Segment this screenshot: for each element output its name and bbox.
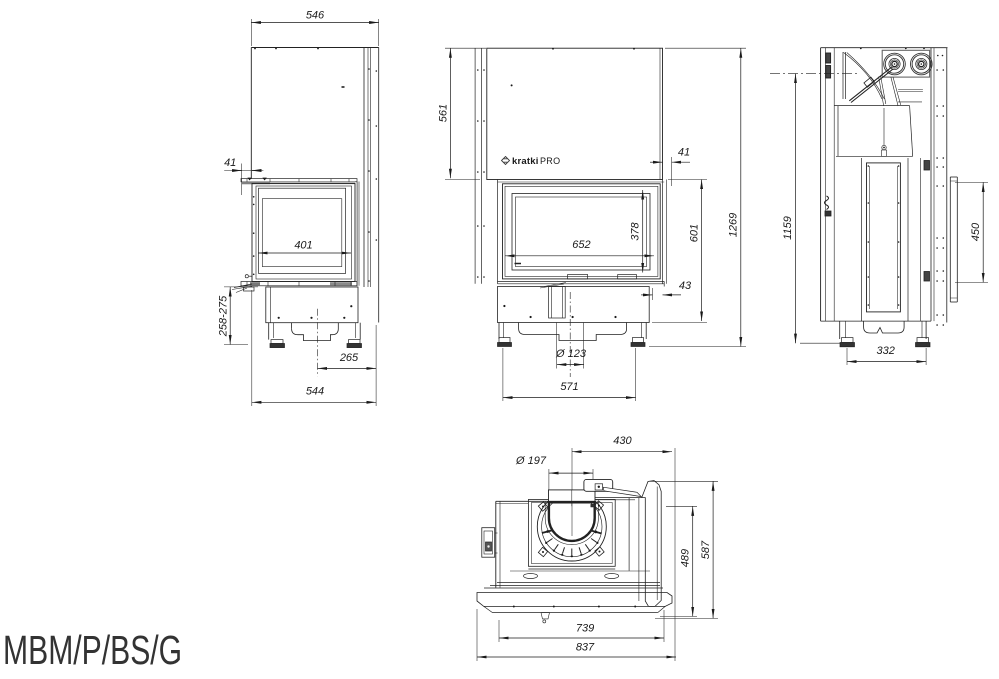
svg-text:41: 41: [678, 147, 690, 159]
svg-text:1159: 1159: [782, 216, 794, 240]
svg-text:652: 652: [572, 239, 590, 251]
svg-text:587: 587: [700, 540, 712, 559]
svg-text:739: 739: [576, 623, 594, 635]
svg-text:258-275: 258-275: [218, 295, 230, 337]
svg-text:571: 571: [560, 381, 578, 393]
svg-text:41: 41: [224, 157, 236, 169]
svg-text:450: 450: [970, 222, 982, 241]
svg-text:489: 489: [680, 549, 692, 567]
svg-text:546: 546: [306, 10, 325, 22]
svg-text:561: 561: [438, 104, 450, 122]
svg-text:401: 401: [294, 240, 312, 252]
svg-text:837: 837: [576, 642, 595, 654]
svg-text:Ø 123: Ø 123: [555, 348, 587, 360]
svg-text:43: 43: [679, 280, 692, 292]
svg-text:430: 430: [613, 435, 632, 447]
svg-text:Ø 197: Ø 197: [515, 455, 547, 467]
svg-text:265: 265: [339, 352, 359, 364]
svg-text:1269: 1269: [728, 213, 740, 237]
svg-text:378: 378: [630, 221, 642, 240]
svg-text:kratki: kratki: [512, 156, 539, 167]
svg-text:544: 544: [306, 386, 324, 398]
svg-text:601: 601: [689, 224, 701, 242]
svg-text:MBM/P/BS/G: MBM/P/BS/G: [3, 626, 182, 673]
svg-text:332: 332: [877, 345, 895, 357]
svg-text:PRO: PRO: [540, 156, 560, 166]
